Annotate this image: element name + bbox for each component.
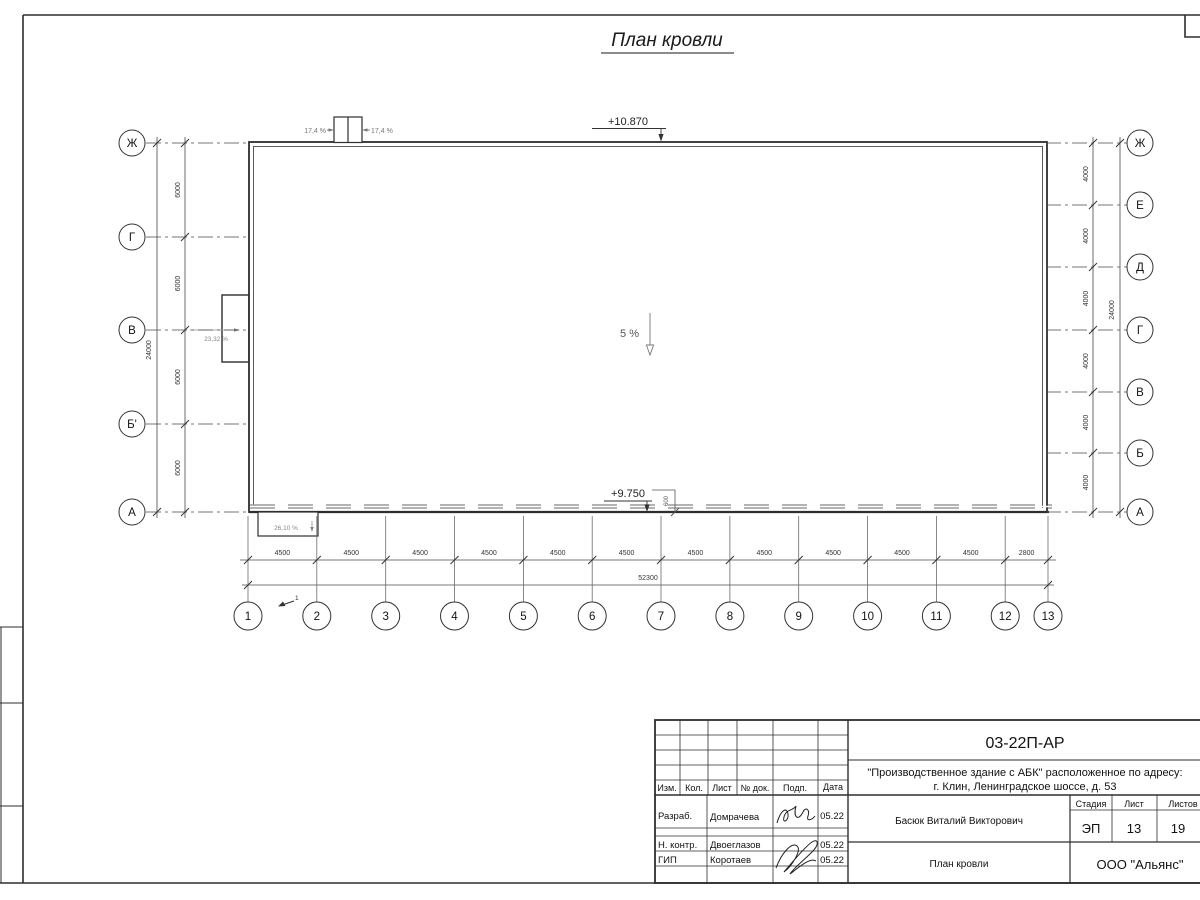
dim-label-bottom: 4500 — [619, 550, 635, 557]
slope-left-label: 23,32 % — [204, 336, 228, 343]
dim-label-bottom: 4500 — [894, 550, 910, 557]
axis-bubble-right-label: Ж — [1135, 138, 1146, 150]
axis-bubble-bottom-label: 7 — [658, 611, 664, 623]
tb-header-list: Лист — [712, 783, 732, 793]
dim-label-right: 4000 — [1083, 475, 1090, 491]
dim-label-right: 4000 — [1083, 291, 1090, 307]
sheet-value: 13 — [1127, 821, 1141, 836]
axis-bubble-bottom-label: 10 — [861, 611, 874, 623]
drawing-sheet: План кровли 17,4 % 17,4 % +10.870 5 % — [0, 0, 1200, 900]
project-name-line1: "Производственное здание с АБК" располож… — [867, 767, 1182, 779]
axis-bubble-bottom-label: 11 — [930, 611, 942, 623]
drawing-title: План кровли — [930, 859, 989, 870]
dim-label-bottom: 4500 — [343, 550, 359, 557]
tb-header-podp: Подп. — [783, 783, 807, 793]
axis-bubble-right-label: Е — [1136, 200, 1144, 212]
axis-bubble-left-label: Б' — [127, 419, 137, 431]
company-name: ООО "Альянс" — [1097, 857, 1184, 872]
slope-top-left-label: 17,4 % — [304, 128, 326, 135]
tb-header-kol: Кол. — [685, 783, 703, 793]
axis-bubble-left-label: В — [128, 325, 136, 337]
axis-bubble-left-label: А — [128, 507, 136, 519]
dim-label-left-total: 24000 — [146, 340, 153, 360]
axis-bubble-bottom-label: 5 — [520, 611, 526, 623]
tb-header-data: Дата — [823, 782, 843, 792]
axis-bubble-bottom-label: 1 — [245, 611, 251, 623]
dim-label-left: 6000 — [175, 182, 182, 198]
axis-bubble-right-label: Г — [1137, 325, 1144, 337]
dim-label-bottom: 4500 — [412, 550, 428, 557]
title-block: 03-22П-АР "Производственное здание с АБК… — [655, 720, 1200, 883]
dim-label-left: 6000 — [175, 369, 182, 385]
dim-label-bottom: 4500 — [481, 550, 497, 557]
axis-bubble-left-label: Ж — [127, 138, 138, 150]
tb-header-izm: Изм. — [657, 783, 676, 793]
tb-date-2: 05.22 — [820, 840, 844, 851]
tb-name-1: Домрачева — [710, 812, 760, 823]
roof-plan-svg: План кровли 17,4 % 17,4 % +10.870 5 % — [0, 0, 1200, 900]
tb-role-1: Разраб. — [658, 811, 692, 822]
dim-label-bottom: 4500 — [963, 550, 979, 557]
frame-corner-notch — [1185, 15, 1200, 37]
dim-label-bottom: 4500 — [688, 550, 704, 557]
stage-value: ЭП — [1082, 821, 1101, 836]
section-arrow-icon — [278, 602, 286, 607]
axis-bubble-right-label: Д — [1136, 262, 1144, 274]
axis-bubble-bottom-label: 9 — [795, 611, 801, 623]
tb-role-2: Н. контр. — [658, 840, 697, 851]
sheets-label: Листов — [1168, 799, 1197, 809]
slope-arrow-right-icon — [329, 128, 335, 131]
dim-label-bottom: 4500 — [757, 550, 773, 557]
filing-margin-boxes — [0, 627, 23, 883]
axis-bubble-left-label: Г — [129, 232, 136, 244]
axis-bubble-bottom-label: 6 — [589, 611, 595, 623]
elevation-top-label: +10.870 — [608, 116, 648, 128]
roof-perimeter — [249, 142, 1047, 512]
doc-number: 03-22П-АР — [985, 735, 1064, 752]
dim-label-right-total: 24000 — [1109, 300, 1116, 320]
dim-label-left: 6000 — [175, 276, 182, 292]
axis-bubble-bottom-label: 4 — [451, 611, 458, 623]
project-name-line2: г. Клин, Ленинградское шоссе, д. 53 — [934, 781, 1117, 793]
elevation-bottom-label: +9.750 — [611, 488, 645, 500]
axis-bubble-bottom-label: 8 — [727, 611, 733, 623]
tb-name-3: Коротаев — [710, 855, 751, 866]
down-arrow-icon — [658, 134, 663, 142]
dim-label-right: 4000 — [1083, 228, 1090, 244]
dim-label-right: 4000 — [1083, 353, 1090, 369]
axis-bubble-right-label: А — [1136, 507, 1144, 519]
dim-label-bottom: 4500 — [550, 550, 566, 557]
tb-role-3: ГИП — [658, 855, 677, 866]
axis-bubble-bottom-label: 12 — [999, 611, 1012, 623]
section-mark-label: 1 — [295, 595, 299, 602]
stage-label: Стадия — [1076, 799, 1107, 809]
dim-label-right: 4000 — [1083, 166, 1090, 182]
dim-label-left: 6000 — [175, 460, 182, 476]
sheets-value: 19 — [1171, 821, 1185, 836]
axis-bubble-right-label: Б — [1136, 448, 1144, 460]
tb-date-3: 05.22 — [820, 855, 844, 866]
axis-bubble-bottom-label: 2 — [314, 611, 320, 623]
client-name: Басюк Виталий Викторович — [895, 816, 1023, 827]
axis-bubble-bottom-label: 3 — [382, 611, 388, 623]
dim-label-bottom: 2800 — [1019, 550, 1035, 557]
dim-label-bottom-total: 52300 — [638, 575, 658, 582]
tb-date-1: 05.22 — [820, 811, 844, 822]
building-outline — [222, 117, 1052, 536]
dim-label-right: 4000 — [1083, 415, 1090, 431]
slope-bottom-left-label: 26,10 % — [274, 525, 298, 532]
offset-dim-label: 600 — [664, 495, 670, 506]
axis-bubble-bottom-label: 13 — [1042, 611, 1055, 623]
slope-top-right-label: 17,4 % — [371, 128, 393, 135]
dim-label-bottom: 4500 — [275, 550, 291, 557]
tb-name-2: Двоеглазов — [710, 840, 761, 851]
bottom-left-canopy-box — [258, 512, 318, 536]
signature-2 — [776, 841, 817, 874]
axis-bubble-right-label: В — [1136, 387, 1144, 399]
slope-main-label: 5 % — [620, 328, 639, 340]
signature-1 — [777, 806, 815, 823]
dim-label-bottom: 4500 — [825, 550, 841, 557]
sheet-label: Лист — [1124, 799, 1144, 809]
tb-header-ndok: № док. — [741, 783, 770, 793]
slope-arrow-left-icon — [362, 128, 368, 131]
page-title: План кровли — [611, 30, 723, 51]
left-protrusion — [222, 295, 249, 362]
